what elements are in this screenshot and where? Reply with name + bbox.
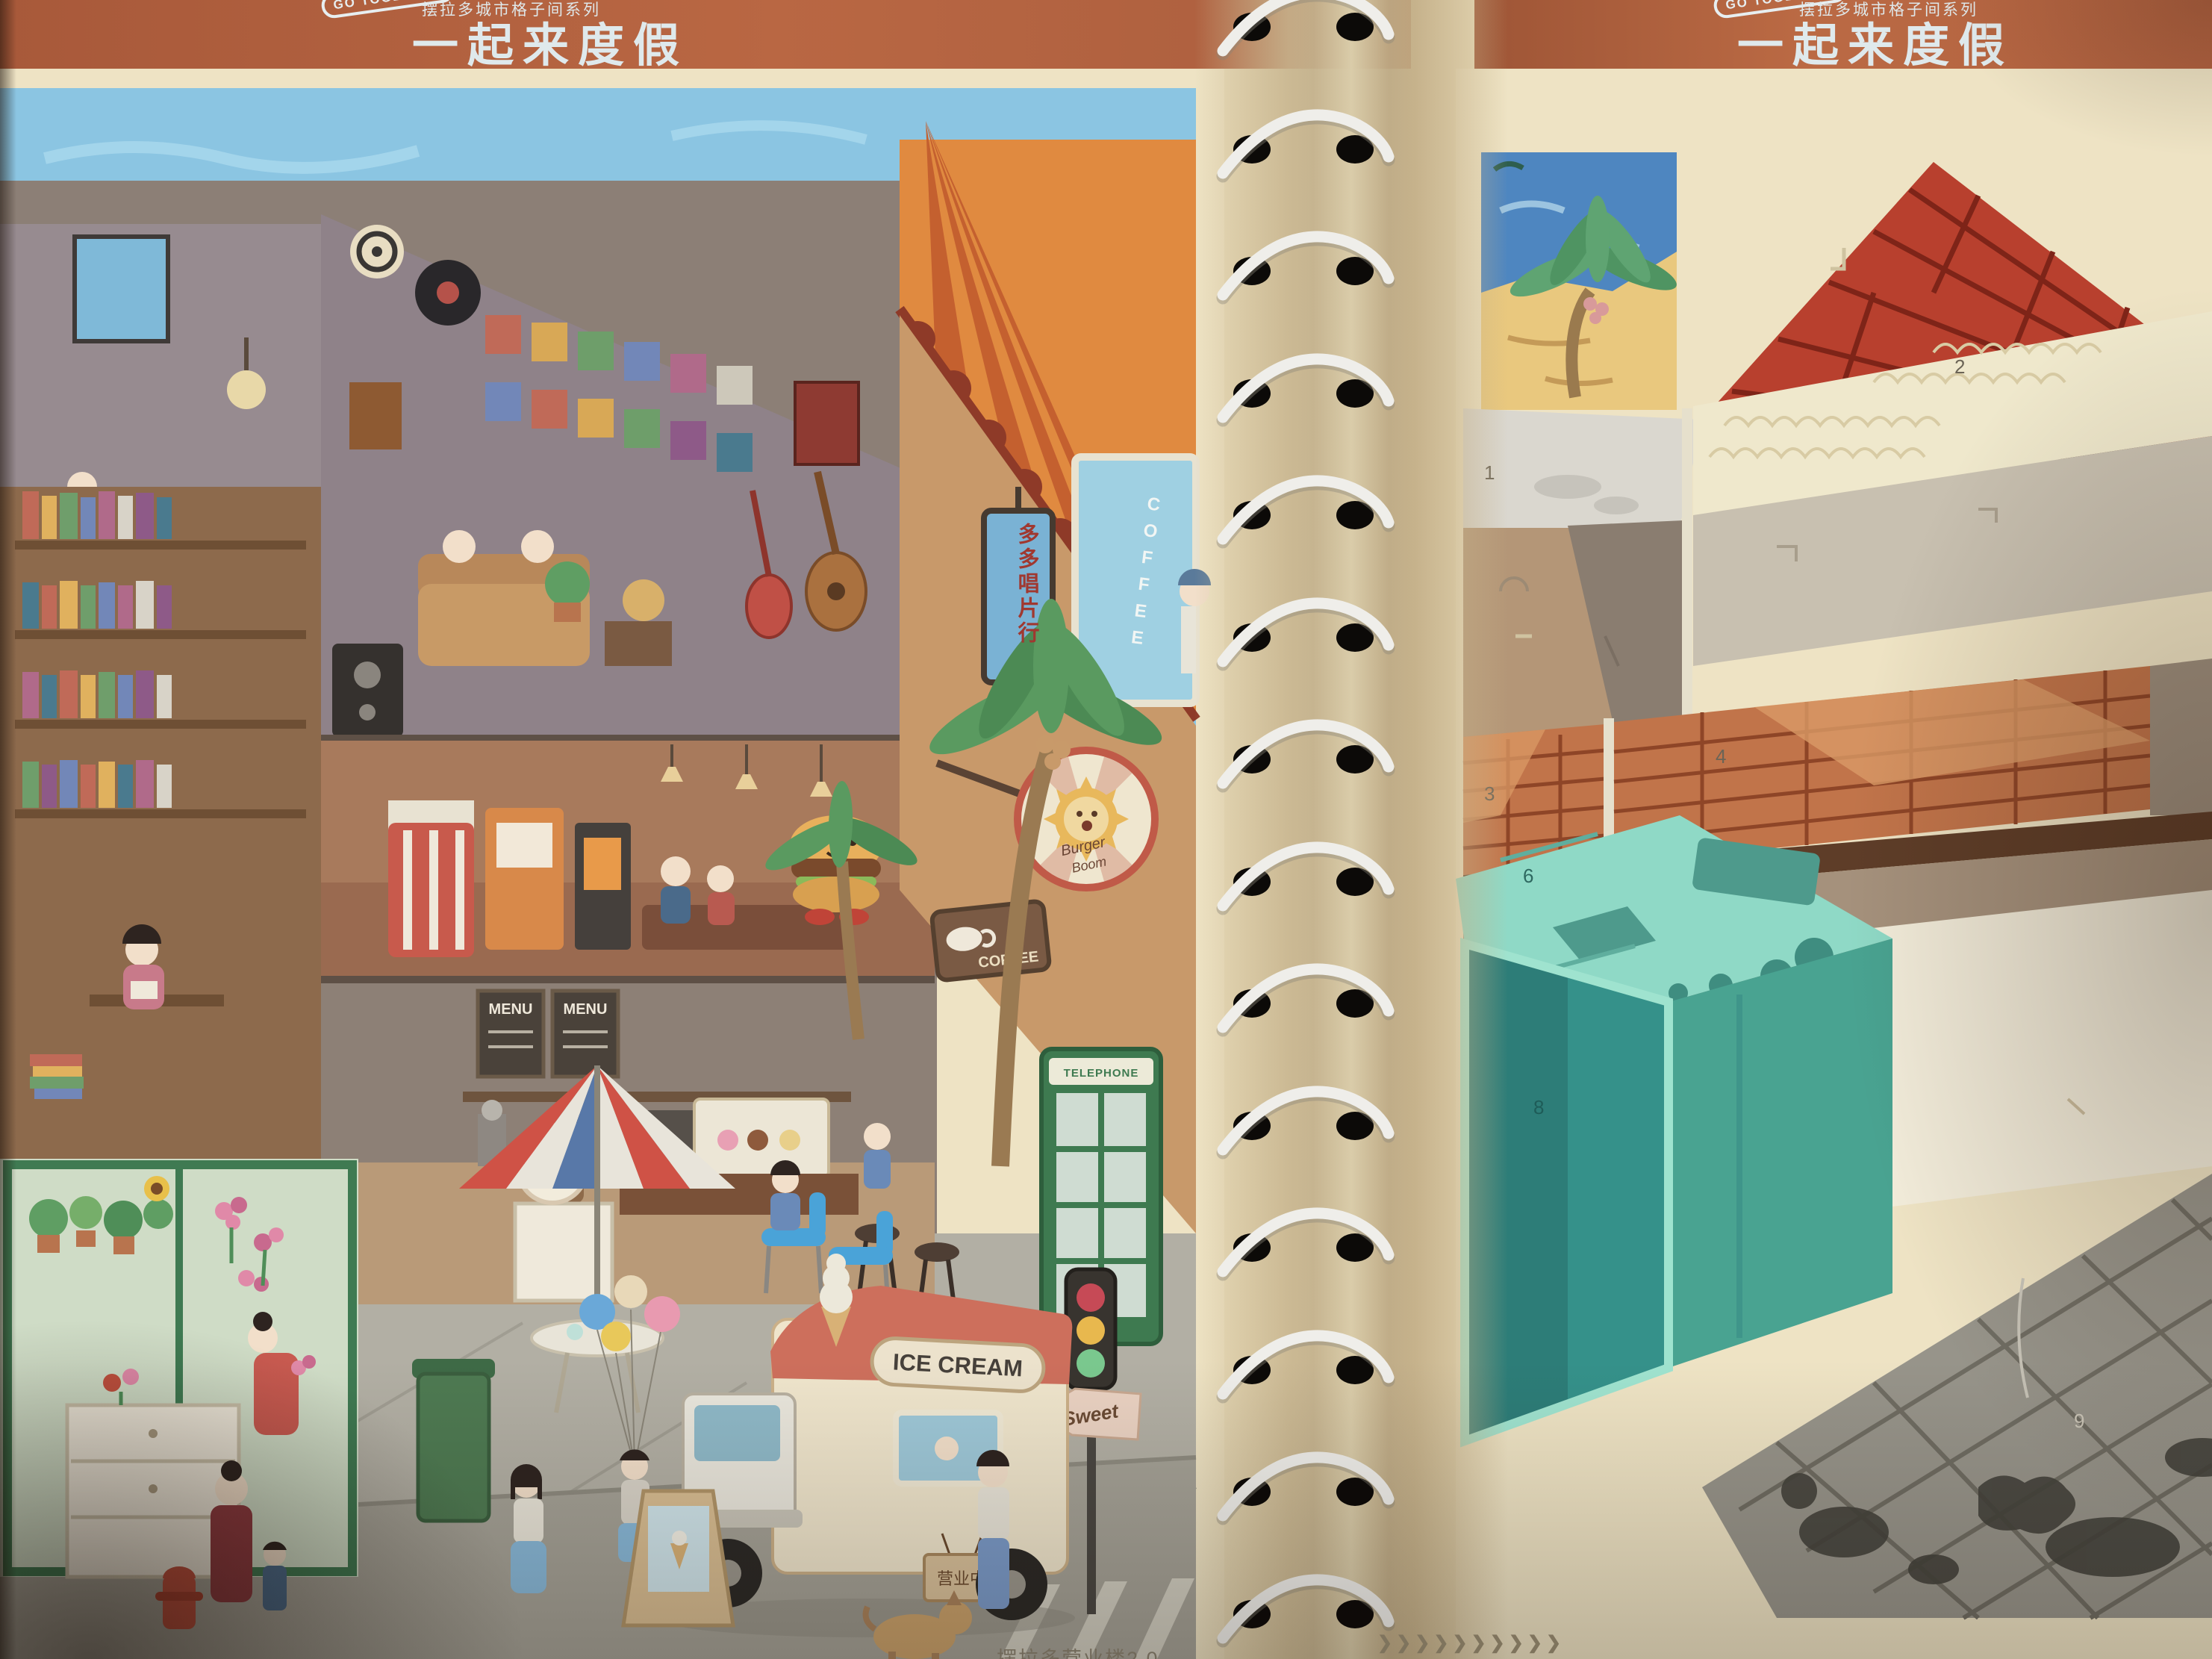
girl-at-truck (511, 1464, 546, 1593)
person (864, 1123, 891, 1150)
gramophone (605, 621, 672, 666)
sticker-template-illustration: 1 2 3 (1456, 69, 2212, 1659)
seek-and-find-illustration: MENU MENU (0, 69, 1224, 1659)
page-title: 一起来度假 (1737, 7, 2013, 75)
book-stack (30, 1054, 84, 1099)
right-page-header: GO TOGETHER 摆拉多城市格子间系列 一起来度假 (1474, 0, 2212, 69)
wall-divider (1682, 408, 1692, 737)
window (75, 237, 168, 341)
left-page-caption: 摆拉多营业楼2.0 (997, 1643, 1159, 1659)
person (661, 856, 691, 886)
poster (795, 382, 859, 464)
glass-box-side (1669, 939, 1892, 1368)
traffic-light (1066, 1269, 1115, 1389)
page-title: 一起来度假 (412, 7, 688, 75)
electric-guitar (747, 575, 791, 638)
person (707, 865, 734, 892)
drink (567, 1324, 583, 1340)
spiral-binding (1165, 0, 1568, 1659)
a-frame-sign (623, 1491, 733, 1625)
zone-number: 9 (2074, 1410, 2084, 1432)
person (443, 530, 476, 563)
lamp (227, 370, 266, 409)
poster (349, 382, 402, 449)
coil-loops (1223, 0, 1389, 1641)
telephone-label: TELEPHONE (1064, 1067, 1139, 1080)
speaker (332, 644, 403, 737)
menu-board-label: MENU (489, 1001, 533, 1018)
plant (545, 561, 590, 606)
zone-number: 2 (1954, 355, 1965, 378)
person-walking (976, 1450, 1009, 1609)
person (521, 530, 554, 563)
side-wall (2150, 659, 2212, 815)
photo-of-sticker-book: GO TOGETHER 摆拉多城市格子间系列 一起来度假 GO TOGETHER… (0, 0, 2212, 1659)
ice-cream-sign: ICE CREAM (871, 1337, 1045, 1392)
coffee-plaque: COFFEE (932, 900, 1050, 980)
menu-board-label: MENU (564, 1001, 608, 1018)
trash-bin (418, 1374, 489, 1521)
zone-number: 4 (1716, 745, 1726, 768)
record-shop-sign-label: 多多唱片行 (994, 523, 1042, 679)
stool (915, 1242, 959, 1262)
